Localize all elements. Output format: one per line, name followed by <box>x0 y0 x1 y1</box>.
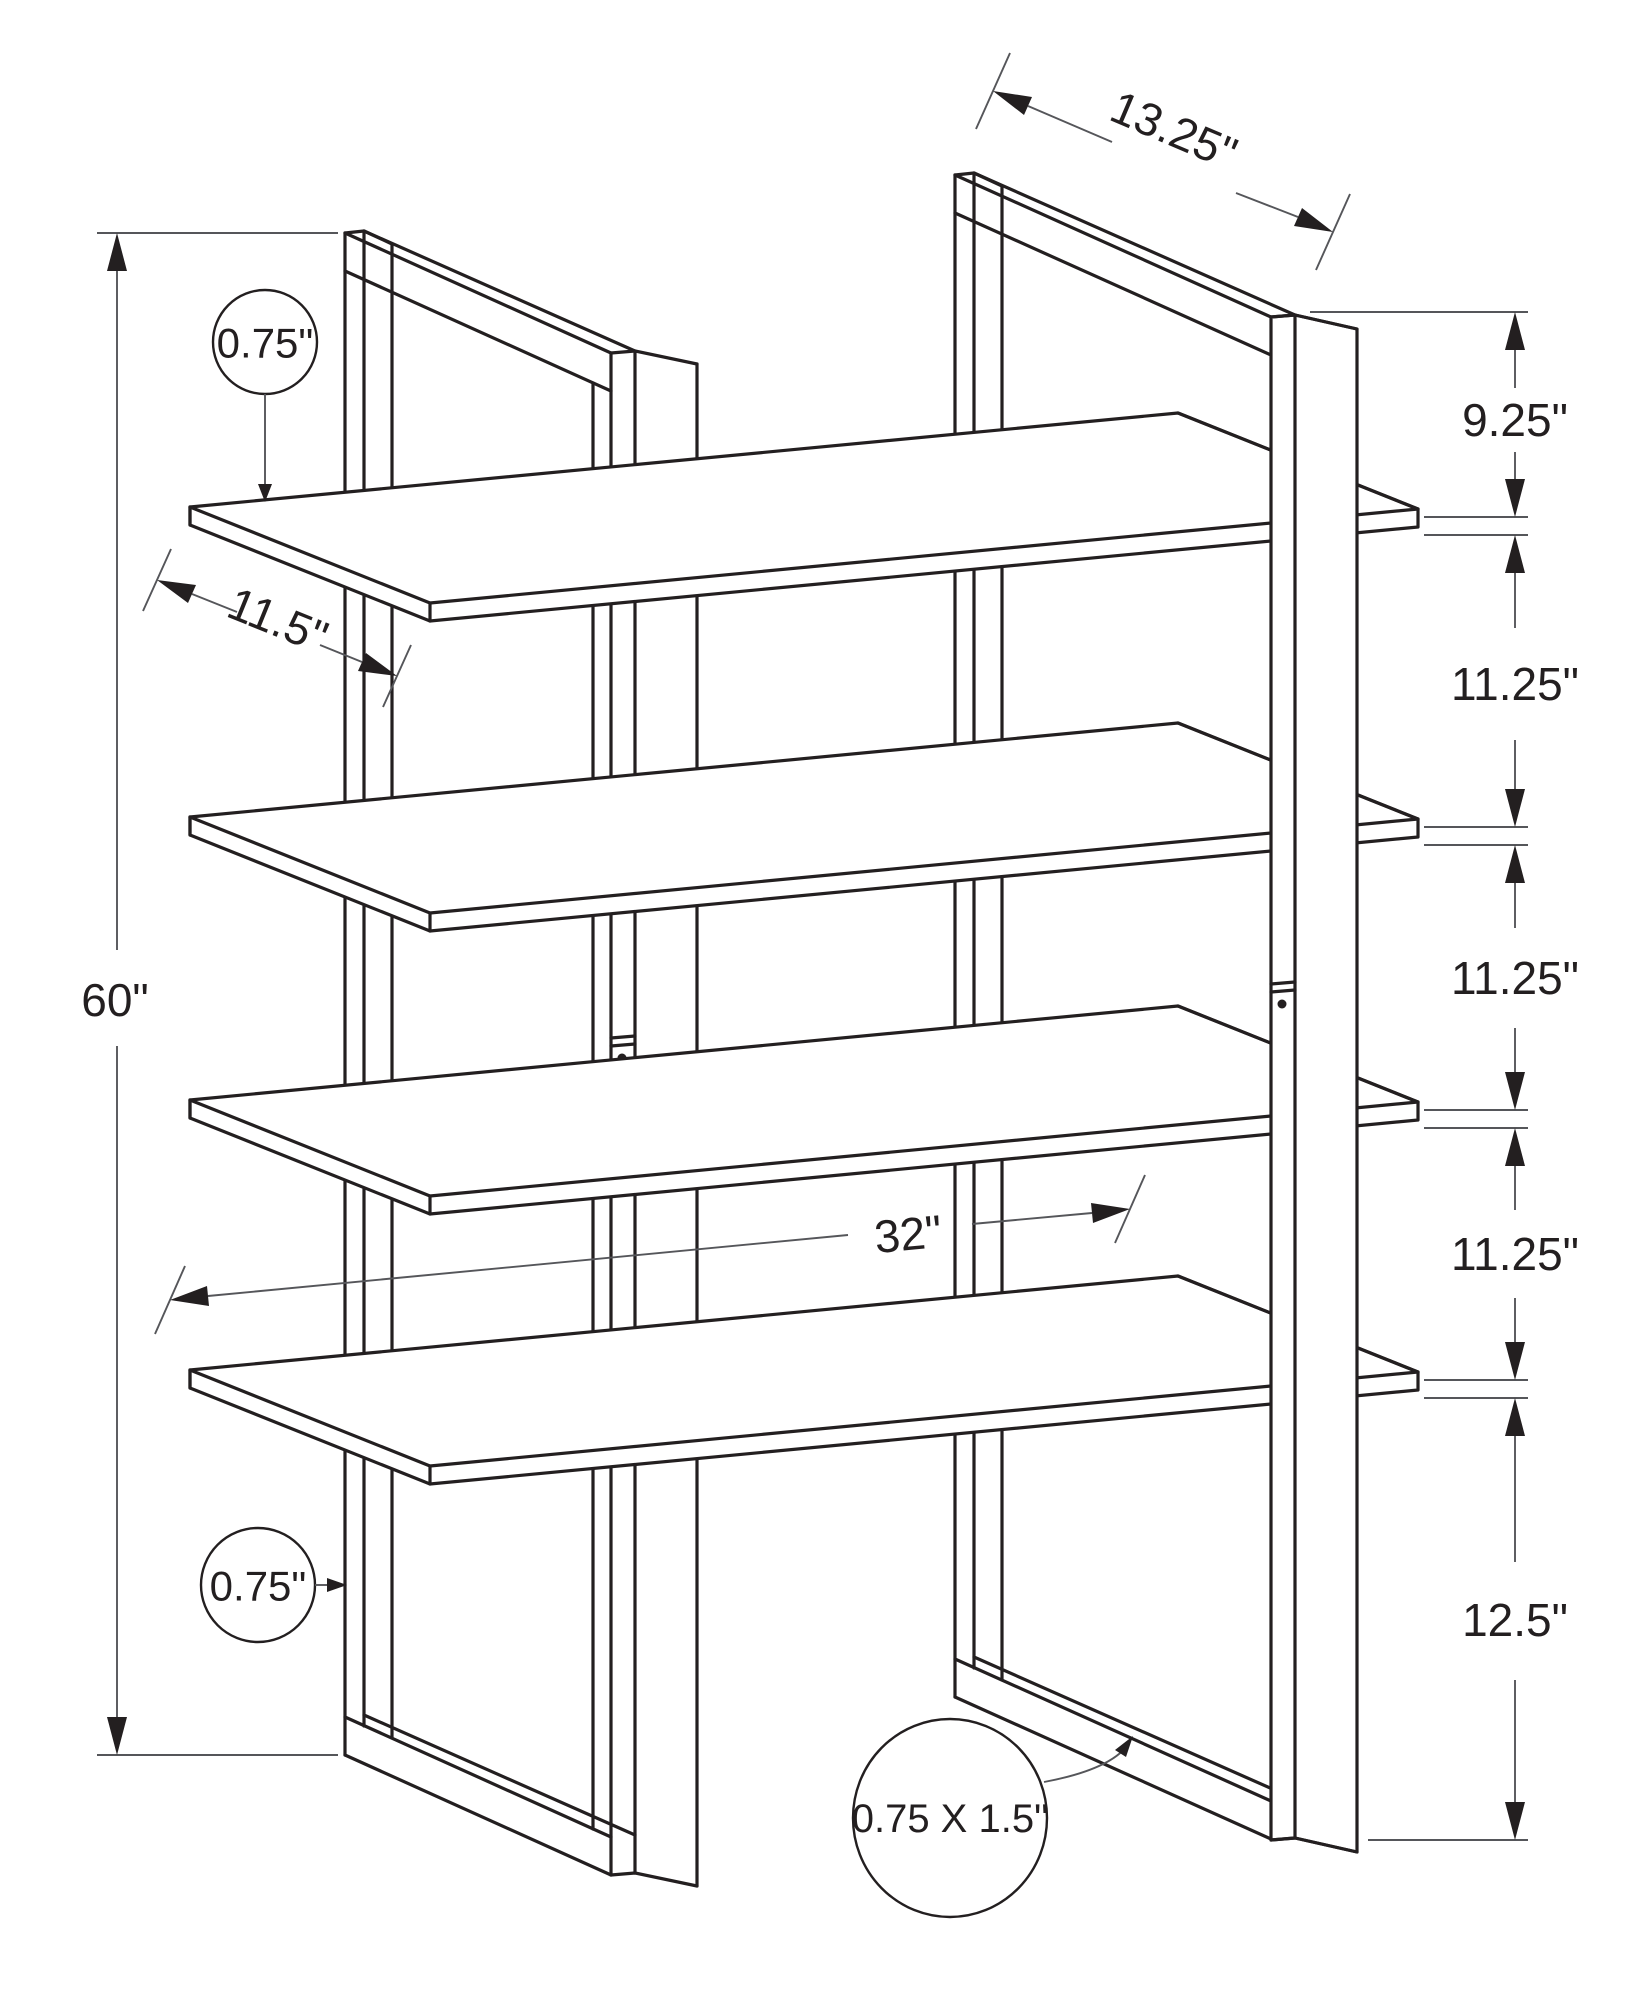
spacing-mid3-label: 11.25" <box>1451 1228 1579 1280</box>
depth-top-label: 13.25" <box>1103 80 1244 179</box>
dim-spacing-mid2: 11.25" <box>1451 845 1579 1110</box>
spacing-top-label: 9.25" <box>1462 394 1568 446</box>
total-height-label: 60" <box>81 974 149 1026</box>
dimension-drawing-page: 60" 13.25" 9.25" <box>0 0 1648 2000</box>
shelf-1 <box>190 413 1418 621</box>
shelf-depth-label: 11.5" <box>221 577 335 664</box>
shelf-2 <box>190 723 1418 931</box>
dim-spacing-top: 9.25" <box>1462 312 1568 517</box>
callout-frame-section: 0.75 X 1.5" <box>852 1719 1133 1917</box>
shelf-width-label: 32" <box>872 1205 944 1263</box>
dim-depth-top: 13.25" <box>976 53 1350 270</box>
frame-right-joint-dot <box>1278 1000 1287 1009</box>
shelf-3 <box>190 1006 1418 1214</box>
frame-width-label: 0.75" <box>210 1563 307 1610</box>
dim-total-height: 60" <box>81 233 338 1755</box>
shelves <box>190 413 1418 1484</box>
frame-right-front-post <box>1271 315 1357 1852</box>
dim-spacing-mid1: 11.25" <box>1451 535 1579 827</box>
bookshelf-diagram: 60" 13.25" 9.25" <box>0 0 1648 2000</box>
spacing-mid2-label: 11.25" <box>1451 952 1579 1004</box>
frame-section-label: 0.75 X 1.5" <box>852 1797 1049 1841</box>
spacing-mid1-label: 11.25" <box>1451 658 1579 710</box>
callout-shelf-thickness: 0.75" <box>213 290 317 502</box>
callout-frame-width: 0.75" <box>201 1528 347 1642</box>
spacing-bottom-label: 12.5" <box>1462 1594 1568 1646</box>
shelf-thickness-label: 0.75" <box>217 320 314 367</box>
dim-spacing-mid3: 11.25" <box>1451 1128 1579 1380</box>
dim-spacing-bottom: 12.5" <box>1462 1398 1568 1840</box>
shelf-4 <box>190 1276 1418 1484</box>
